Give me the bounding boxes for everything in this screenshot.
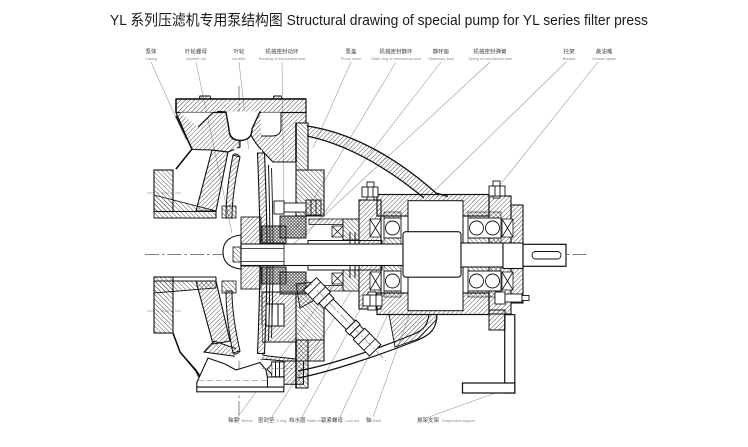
svg-text:机械密封静环: 机械密封静环 [379,48,413,56]
svg-text:密封垫: 密封垫 [258,416,275,424]
svg-text:托架: 托架 [563,48,575,56]
svg-text:Bracket: Bracket [563,57,577,61]
svg-text:Spring of mechanical seal: Spring of mechanical seal [468,57,512,61]
svg-text:Sleeve: Sleeve [241,419,253,423]
svg-text:Casing: Casing [145,57,157,61]
svg-text:锁紧螺母: 锁紧螺母 [321,416,344,424]
svg-text:Stationary seat: Stationary seat [428,57,454,61]
svg-text:YL 系列压滤机专用泵结构图 Structural dra: YL 系列压滤机专用泵结构图 Structural drawing of spe… [110,12,648,29]
svg-text:泵盖: 泵盖 [345,48,357,56]
svg-text:静环座: 静环座 [433,48,450,56]
svg-text:O-ring: O-ring [276,419,287,423]
svg-text:轴套: 轴套 [228,416,240,424]
svg-text:Grease nipple: Grease nipple [592,57,616,61]
svg-text:Shaft: Shaft [372,419,382,423]
svg-text:机械密封动环: 机械密封动环 [265,48,299,56]
svg-text:Impeller: Impeller [232,57,246,61]
svg-text:Static ring of mechanical seal: Static ring of mechanical seal [371,57,421,61]
svg-text:Rotating of mechanical seal: Rotating of mechanical seal [259,57,306,61]
svg-text:Water ring: Water ring [307,419,324,423]
svg-text:叶轮: 叶轮 [233,48,245,56]
svg-text:黄油嘴: 黄油嘴 [596,48,613,56]
svg-text:挡水圈: 挡水圈 [289,416,306,424]
svg-text:泵体: 泵体 [145,48,157,56]
svg-text:Suspended support: Suspended support [442,419,476,423]
svg-text:Pump cover: Pump cover [341,57,362,61]
svg-text:悬架支架: 悬架支架 [417,416,440,424]
svg-text:叶轮螺母: 叶轮螺母 [185,48,208,56]
svg-text:Impeller nut: Impeller nut [186,57,207,61]
svg-text:机械密封弹簧: 机械密封弹簧 [473,48,507,56]
svg-text:Lock nut: Lock nut [345,419,360,423]
